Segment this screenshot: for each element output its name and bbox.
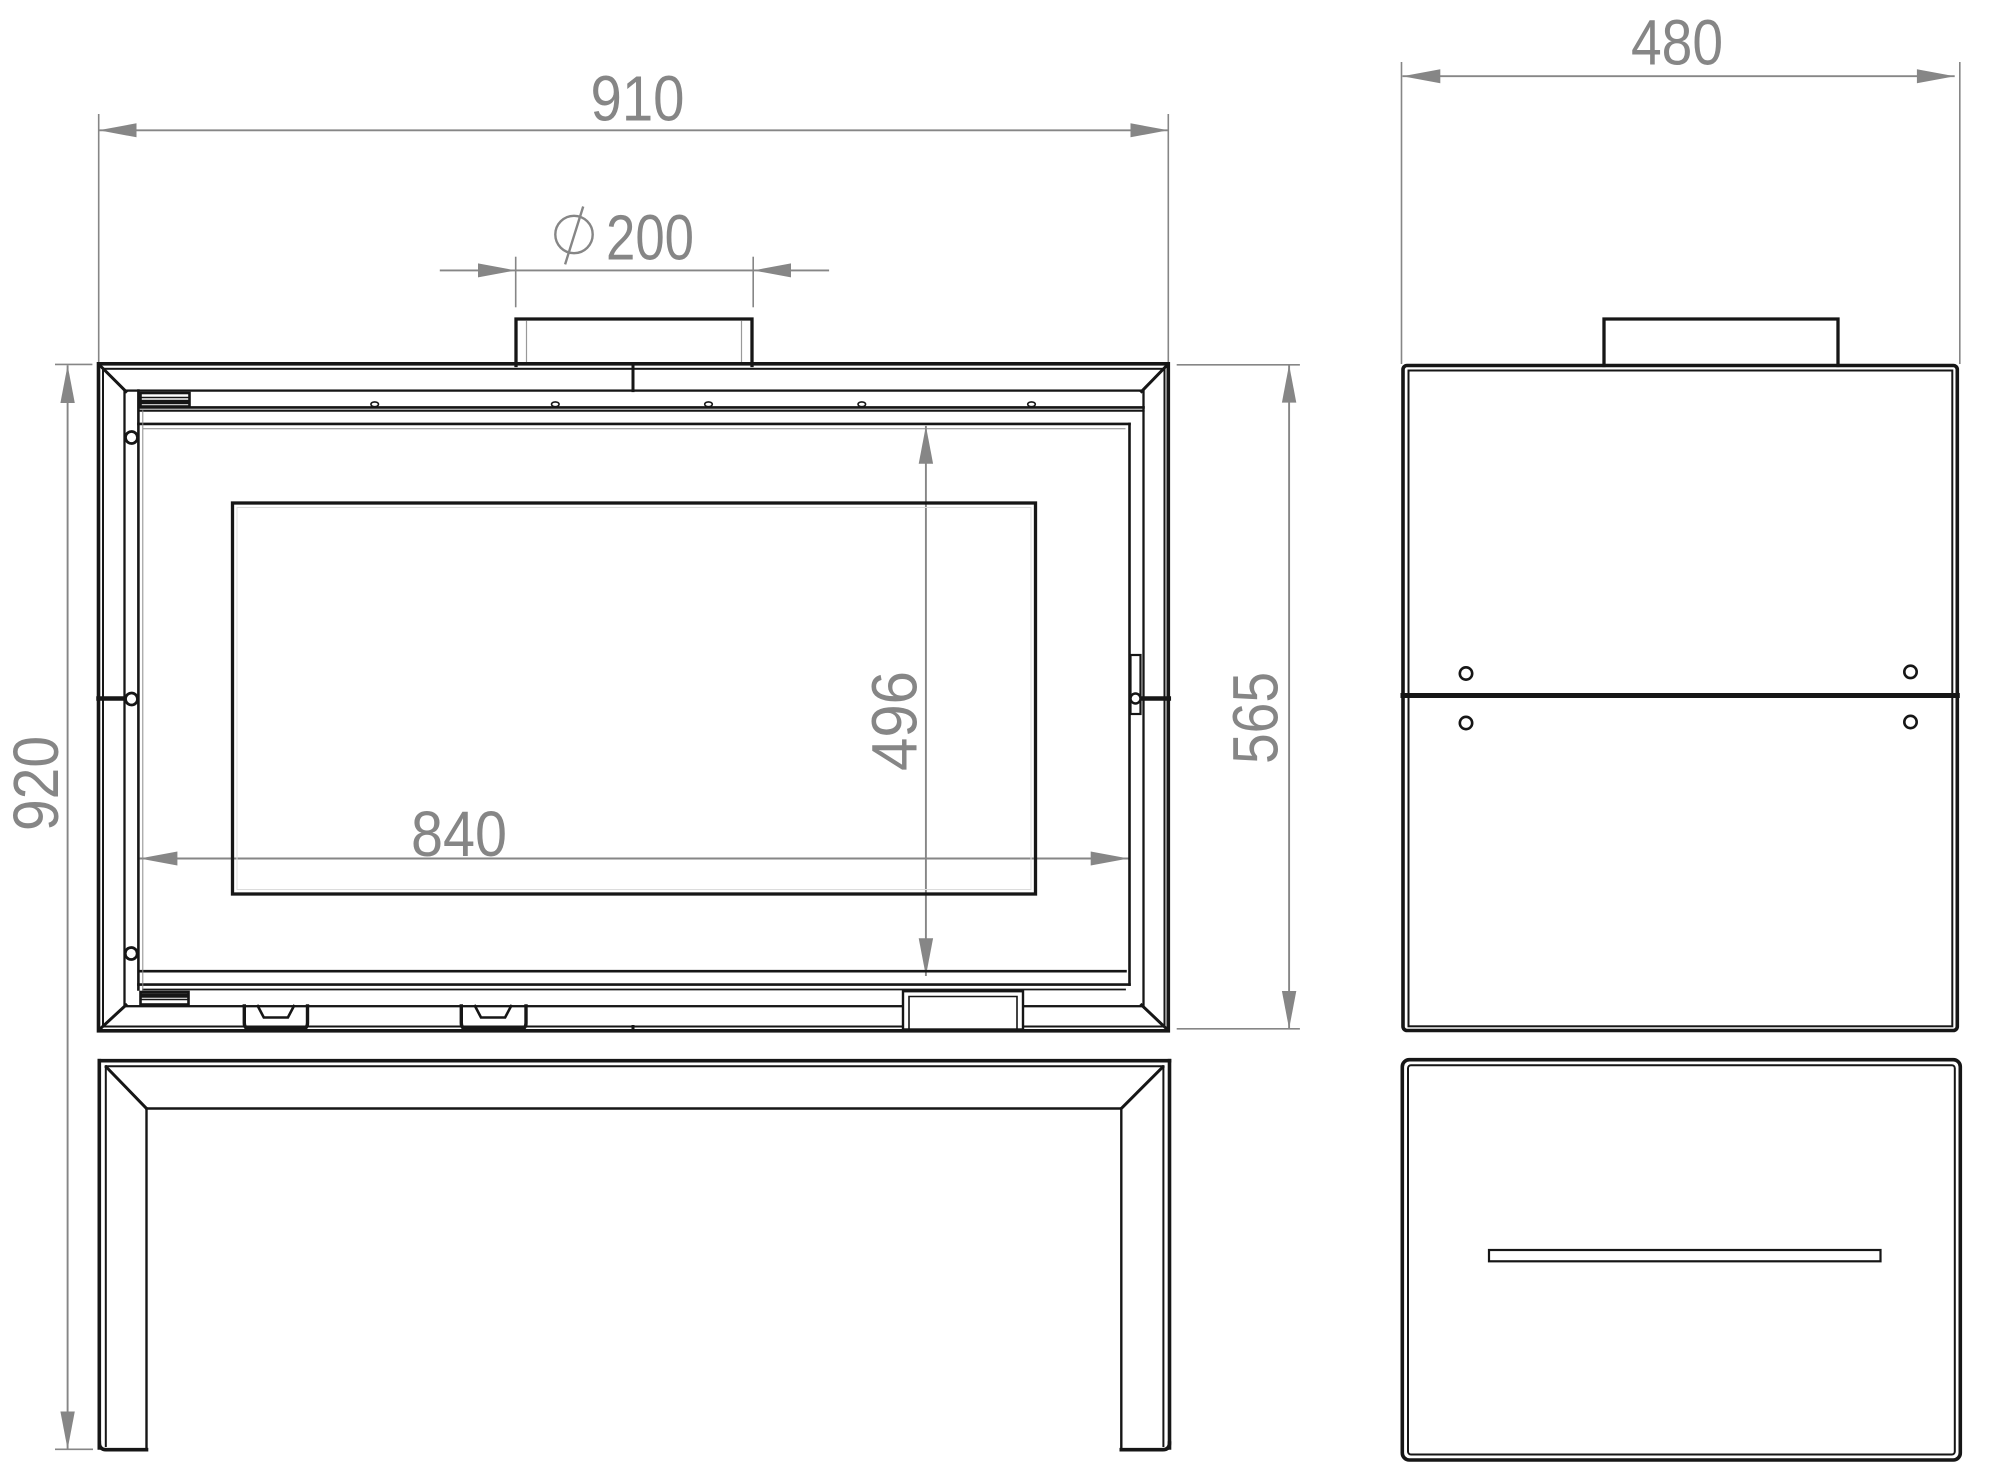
svg-text:910: 910	[591, 62, 685, 134]
svg-text:920: 920	[0, 736, 72, 831]
svg-text:496: 496	[858, 671, 930, 771]
svg-text:565: 565	[1219, 672, 1291, 764]
svg-text:200: 200	[606, 201, 694, 273]
svg-text:480: 480	[1631, 6, 1723, 78]
svg-text:840: 840	[411, 798, 507, 870]
